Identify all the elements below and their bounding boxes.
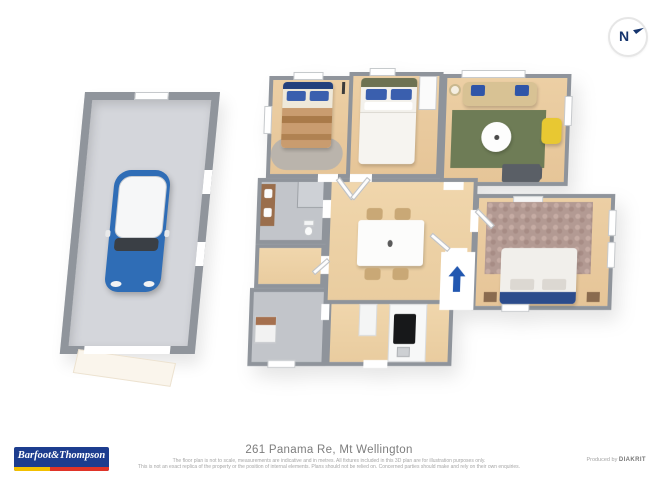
window bbox=[608, 210, 617, 236]
pillow bbox=[471, 85, 485, 96]
nightstand bbox=[484, 292, 497, 302]
window bbox=[267, 360, 295, 368]
sink bbox=[397, 347, 410, 357]
tv-cabinet bbox=[502, 164, 541, 182]
car-mirror bbox=[164, 230, 170, 237]
window bbox=[501, 304, 529, 312]
car bbox=[104, 170, 172, 292]
table-decor bbox=[494, 135, 499, 140]
headboard bbox=[361, 78, 417, 87]
basin bbox=[264, 189, 272, 198]
car-windshield bbox=[114, 238, 159, 251]
table-decor bbox=[387, 240, 392, 247]
car-mirror bbox=[105, 230, 111, 237]
toilet-bowl bbox=[304, 226, 313, 236]
pillow bbox=[515, 85, 529, 96]
house-floorplan bbox=[247, 60, 630, 372]
pillow bbox=[310, 91, 329, 101]
toilet bbox=[303, 220, 315, 236]
pillow bbox=[391, 89, 412, 100]
car-roof bbox=[114, 176, 168, 238]
produced-by-label: Produced by bbox=[586, 457, 617, 463]
laundry bbox=[247, 288, 328, 366]
disclaimer-line-2: This is not an exact replica of the prop… bbox=[0, 464, 658, 470]
bed-foot-throw bbox=[499, 292, 575, 304]
door-gap bbox=[195, 242, 205, 266]
car-headlight bbox=[110, 281, 122, 287]
floor-lamp bbox=[449, 84, 461, 96]
producer-credit: Produced by DIAKRIT bbox=[586, 457, 646, 463]
plan-title: 261 Panama Re, Mt Wellington bbox=[0, 444, 658, 456]
fridge-cabinet bbox=[358, 304, 377, 336]
blanket bbox=[281, 108, 332, 148]
duvet bbox=[358, 112, 416, 164]
north-arrow-icon bbox=[633, 24, 644, 34]
door-gap bbox=[322, 200, 331, 218]
bathroom bbox=[256, 178, 328, 244]
door-gap bbox=[202, 170, 212, 194]
window bbox=[263, 106, 272, 134]
bed bbox=[281, 82, 333, 148]
window bbox=[369, 68, 395, 76]
armchair bbox=[541, 118, 562, 144]
door-gap bbox=[443, 182, 463, 190]
chair bbox=[394, 208, 410, 220]
door-gap bbox=[318, 174, 338, 182]
window bbox=[134, 92, 169, 100]
shower bbox=[297, 182, 324, 208]
floorplan-page: N bbox=[0, 0, 658, 493]
bedroom-3 bbox=[471, 194, 615, 310]
driveway bbox=[73, 349, 176, 387]
bed bbox=[499, 248, 577, 304]
car-headlight bbox=[143, 281, 155, 287]
sofa bbox=[462, 82, 537, 106]
garage bbox=[60, 92, 220, 354]
pillow bbox=[287, 91, 306, 101]
chair bbox=[364, 268, 380, 280]
door-gap bbox=[321, 304, 330, 320]
bed bbox=[358, 78, 417, 164]
blanket-fold bbox=[282, 116, 332, 123]
pillow bbox=[510, 279, 534, 290]
headboard bbox=[283, 82, 333, 89]
blanket-fold bbox=[281, 134, 331, 140]
wc-hall bbox=[254, 244, 326, 288]
compass-icon: N bbox=[608, 17, 648, 57]
window bbox=[564, 96, 573, 126]
wardrobe bbox=[418, 76, 437, 110]
pillow bbox=[366, 89, 387, 100]
sheet bbox=[364, 102, 412, 110]
garage-door-opening bbox=[84, 346, 171, 354]
dining-table bbox=[357, 220, 425, 266]
washing-machine bbox=[254, 316, 277, 343]
washer-top bbox=[256, 317, 276, 325]
window bbox=[461, 70, 525, 78]
bedroom-2 bbox=[346, 72, 444, 178]
kitchen bbox=[325, 300, 453, 366]
basin bbox=[264, 208, 272, 217]
chair bbox=[392, 268, 408, 280]
bedroom-1 bbox=[266, 76, 354, 178]
producer-name: DIAKRIT bbox=[619, 457, 646, 463]
stove bbox=[393, 314, 416, 344]
kitchen-counter bbox=[387, 304, 427, 362]
vanity bbox=[260, 184, 275, 226]
door-gap bbox=[363, 360, 387, 368]
chair bbox=[366, 208, 382, 220]
compass-north-label: N bbox=[619, 28, 629, 44]
window bbox=[293, 72, 323, 80]
window bbox=[607, 242, 616, 268]
pillow bbox=[542, 279, 566, 290]
floor-lamp bbox=[342, 82, 345, 94]
nightstand bbox=[587, 292, 600, 302]
